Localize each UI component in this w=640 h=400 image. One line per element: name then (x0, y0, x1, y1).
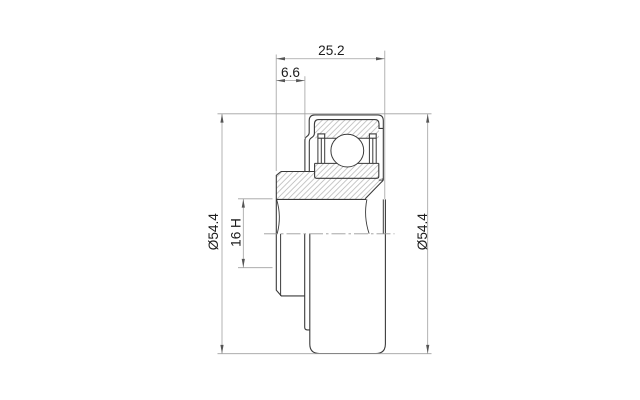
svg-text:6.6: 6.6 (281, 65, 300, 80)
svg-text:16 H: 16 H (229, 218, 244, 247)
svg-text:Ø54.4: Ø54.4 (415, 213, 430, 250)
svg-text:Ø54.4: Ø54.4 (206, 213, 221, 250)
svg-text:25.2: 25.2 (318, 43, 344, 58)
